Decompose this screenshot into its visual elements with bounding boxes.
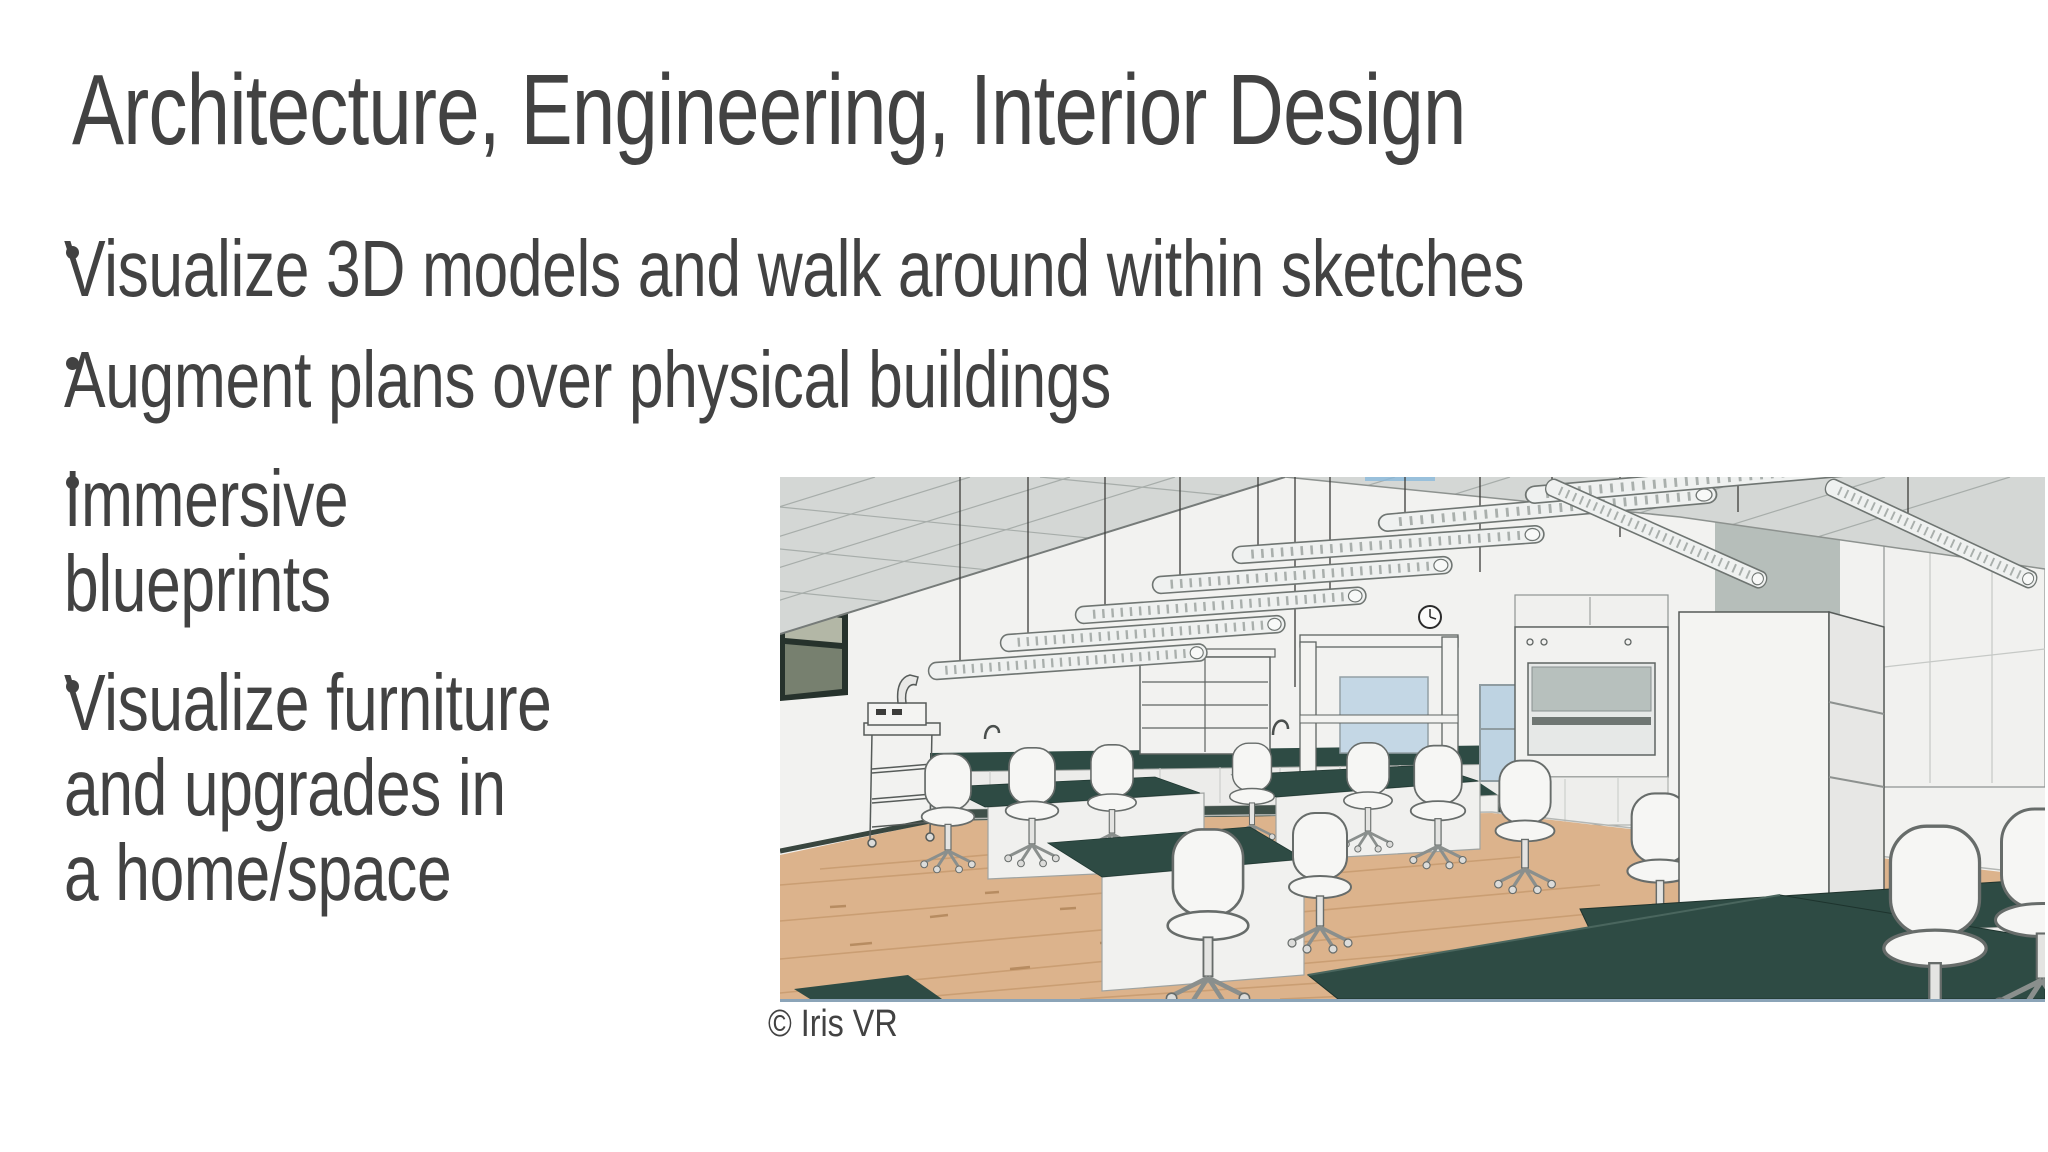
wall-clock bbox=[1419, 606, 1441, 628]
bullet-item: Visualize 3D models and walk around with… bbox=[64, 208, 1936, 311]
lab-render-illustration bbox=[780, 477, 2045, 999]
bullet-line: Augment plans over physical buildings bbox=[64, 337, 1406, 422]
bullet-line: blueprints bbox=[64, 541, 428, 626]
bullet-item: Immersive blueprints bbox=[64, 438, 428, 626]
bullet-line: Visualize furniture bbox=[64, 660, 689, 745]
slide-title: Architecture, Engineering, Interior Desi… bbox=[72, 58, 1859, 163]
slide: Architecture, Engineering, Interior Desi… bbox=[0, 0, 2048, 1152]
bullet-line: Immersive bbox=[64, 456, 428, 541]
image-credit: © Iris VR bbox=[768, 1002, 921, 1046]
bullet-line: Visualize 3D models and walk around with… bbox=[64, 226, 1936, 311]
slide-title-text: Architecture, Engineering, Interior Desi… bbox=[72, 58, 1466, 163]
lab-render-image bbox=[780, 477, 2045, 1002]
bullet-line: a home/space bbox=[64, 830, 689, 915]
bullet-item: Augment plans over physical buildings bbox=[64, 319, 1406, 422]
bullet-line: and upgrades in bbox=[64, 745, 689, 830]
window-sky-sliver bbox=[1365, 477, 1435, 481]
bullet-item: Visualize furniture and upgrades in a ho… bbox=[64, 642, 689, 915]
shelf-monolith bbox=[1679, 612, 1884, 932]
